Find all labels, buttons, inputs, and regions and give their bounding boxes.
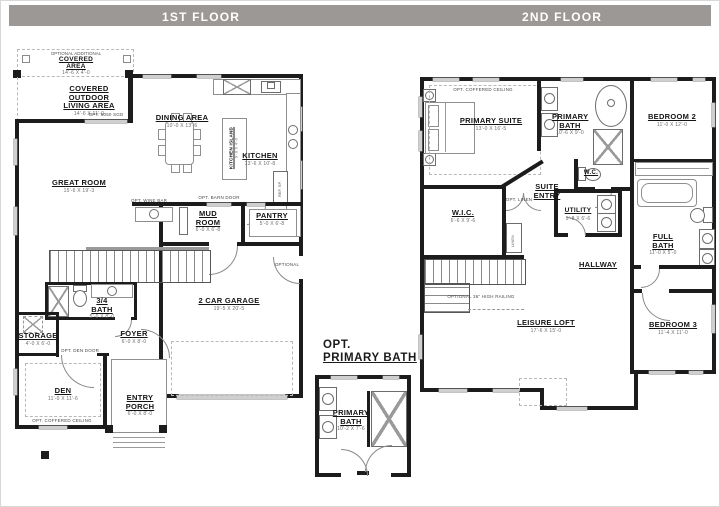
- wall: [237, 242, 245, 246]
- wall: [15, 312, 59, 315]
- floorplan-sheet: 1ST FLOOR 2ND FLOOR OPTIONAL ADDITIONAL …: [0, 0, 720, 507]
- primary-suite-label: PRIMARY SUITE 13'-0 X 16'-5: [460, 117, 522, 132]
- porch-step-line: [113, 447, 165, 448]
- window: [557, 407, 587, 410]
- wall: [315, 473, 341, 477]
- opt-bath-title-line2: PRIMARY BATH: [323, 352, 417, 365]
- window: [14, 207, 17, 235]
- optional-door-note: OPTIONAL: [275, 262, 299, 267]
- ref-space-label: REF. SP.: [277, 181, 282, 197]
- door-arc: [365, 445, 392, 472]
- mudroom-bench: [179, 207, 188, 235]
- bar-sink-icon: [149, 209, 159, 219]
- double-door-arc: [506, 193, 524, 211]
- pantry-label: PANTRY 5'-0 X 6'-8: [256, 212, 288, 227]
- window: [712, 305, 715, 333]
- wall: [407, 375, 411, 477]
- wall: [634, 370, 716, 374]
- wall: [15, 353, 57, 356]
- window: [143, 75, 171, 78]
- wall: [630, 77, 634, 163]
- sink-icon: [107, 286, 117, 296]
- window: [14, 139, 17, 165]
- wc-label: W.C.: [584, 169, 598, 178]
- dryer-drum-icon: [601, 217, 612, 228]
- porch-post: [105, 425, 113, 433]
- window: [651, 78, 677, 81]
- window: [383, 376, 399, 379]
- wall: [422, 185, 504, 189]
- dining-area-label: DINING AREA 10'-0 X 13'-6: [156, 114, 209, 129]
- wall: [630, 159, 634, 269]
- opt-primary-bath-title: OPT. PRIMARY BATH: [323, 339, 417, 365]
- wall: [618, 189, 622, 237]
- den-label: DEN 11'-0 X 11'-6: [48, 387, 78, 402]
- door-arc: [641, 269, 660, 288]
- wall: [241, 242, 303, 246]
- wall: [634, 374, 638, 410]
- window: [439, 389, 467, 392]
- full-bath-label: FULL BATH 11'-0 X 5'-0: [649, 233, 677, 256]
- wall: [585, 233, 622, 237]
- staircase: [49, 250, 211, 283]
- window: [473, 78, 499, 81]
- wall: [669, 289, 716, 293]
- car-parking-outline: [171, 341, 293, 396]
- wall: [554, 233, 568, 237]
- suite-ceiling-note: OPT. COFFERED CEILING: [453, 87, 512, 92]
- window: [433, 78, 459, 81]
- railing-note: OPTIONAL 36" HIGH RAILING: [447, 294, 514, 299]
- bedroom2-label: BEDROOM 2 11'-0 X 12'-0: [648, 113, 696, 128]
- opt-covered-area-label: OPTIONAL ADDITIONAL COVERED AREA 14'-6 X…: [50, 51, 102, 76]
- window: [39, 426, 67, 429]
- window: [649, 371, 675, 374]
- kitchen-label: KITCHEN 13'-6 X 10'-8: [242, 152, 277, 167]
- wall: [391, 473, 411, 477]
- storage-label: STORAGE 4'-0 X 6'-0: [18, 332, 57, 347]
- window: [689, 371, 703, 374]
- porch-post: [159, 425, 167, 433]
- porch-post: [22, 55, 30, 63]
- chair: [171, 164, 180, 173]
- island-label: KITCHEN ISLAND 9'-0 X 4'-0: [229, 120, 240, 176]
- sliding-glass-door: [85, 120, 127, 123]
- range-icon: [223, 79, 251, 95]
- window: [561, 78, 583, 81]
- door-arc: [209, 246, 238, 275]
- staircase: [424, 259, 526, 285]
- hallway-label: HALLWAY: [579, 261, 617, 270]
- opt-den-door-note: OPT. DEN DOOR: [61, 348, 99, 353]
- wall: [659, 265, 716, 269]
- tub-drain-icon: [607, 99, 615, 107]
- entry-porch-label: ENTRY PORCH 6'-0 X 8'-0: [122, 394, 158, 417]
- closet-rod-line: [637, 168, 709, 169]
- wall: [134, 282, 137, 320]
- utility-label: UTILITY 5'-8 X 6'-6: [565, 207, 592, 222]
- patio-edge-line: [17, 77, 19, 121]
- window: [197, 75, 221, 78]
- great-room-label: GREAT ROOM 15'-6 X 19'-3: [52, 179, 106, 194]
- primary-bath-label: PRIMARY BATH 10'-6 X 9'-0: [552, 113, 588, 136]
- wall: [103, 356, 107, 429]
- foyer-label: FOYER 6'-0 X 8'-0: [120, 330, 147, 345]
- window: [493, 389, 519, 392]
- wall: [630, 289, 634, 374]
- closet: [635, 162, 713, 176]
- floor2-title: 2ND FLOOR: [522, 10, 602, 24]
- toilet-icon: [73, 290, 87, 307]
- chair: [183, 164, 192, 173]
- window: [712, 103, 715, 127]
- opt-linen-note: OPT. LINEN: [506, 197, 533, 202]
- chair: [158, 129, 166, 140]
- wall: [241, 202, 245, 246]
- opt-sgd-note: OPT. 6050 SGD: [89, 112, 124, 117]
- prep-sink-icon: [288, 139, 298, 149]
- porch-post: [41, 451, 49, 459]
- window: [419, 97, 422, 117]
- wic-label: W.I.C. 6'-6 X 9'-6: [451, 209, 476, 224]
- garage-label: 2 CAR GARAGE 19'-5 X 20'-5: [198, 297, 259, 312]
- door-arc: [642, 293, 670, 321]
- sink-icon: [544, 93, 555, 104]
- shower-icon: [371, 391, 407, 447]
- wall: [159, 242, 209, 246]
- linen-label: LINEN: [510, 235, 515, 247]
- floor1-title: 1ST FLOOR: [162, 10, 240, 24]
- window: [331, 376, 357, 379]
- prep-sink-icon: [288, 125, 298, 135]
- window: [419, 131, 422, 151]
- window: [693, 78, 705, 81]
- railing-outline: [468, 309, 524, 311]
- porch-post: [123, 55, 131, 63]
- suite-entry-label: SUITE ENTRY: [532, 183, 562, 200]
- window: [14, 369, 17, 395]
- wall: [299, 279, 303, 398]
- opt-bath-title-line1: OPT.: [323, 339, 417, 352]
- chair: [193, 145, 201, 156]
- header-bar: [9, 5, 711, 26]
- door-arc: [341, 449, 368, 476]
- mud-room-label: MUD ROOM 6'-0 X 6'-8: [191, 210, 225, 233]
- bedroom3-label: BEDROOM 3 11'-4 X 11'-0: [649, 321, 697, 336]
- wall: [540, 406, 638, 410]
- wall: [299, 246, 303, 256]
- opt-wine-bar-note: OPT. WINE BAR: [131, 198, 167, 203]
- porch-step-line: [113, 437, 165, 438]
- barn-door-opening: [207, 203, 231, 206]
- wall: [554, 189, 622, 193]
- sink-icon: [702, 253, 713, 264]
- chair: [158, 145, 166, 156]
- porch-step-line: [113, 442, 165, 443]
- window: [419, 335, 422, 359]
- bathtub-inner: [641, 183, 693, 203]
- den-ceiling-note: OPT. COFFERED CEILING: [32, 418, 91, 423]
- toilet-icon: [690, 208, 705, 223]
- washer-drum-icon: [601, 199, 612, 210]
- faucet-icon: [267, 82, 275, 89]
- three-quarter-bath-label: 3/4 BATH 5'-0 X 8'-0: [87, 297, 117, 320]
- chair: [193, 129, 201, 140]
- sink-icon: [702, 233, 713, 244]
- sink-icon: [322, 393, 334, 405]
- opt-bath-room-label: PRIMARY BATH 10'-2 X 7'-6: [332, 409, 370, 432]
- leisure-loft-label: LEISURE LOFT 17'-6 X 15'-0: [517, 319, 575, 334]
- shower-icon: [593, 129, 623, 165]
- opt-barn-door-note: OPT. BARN DOOR: [198, 195, 239, 200]
- optional-area-outline: [519, 378, 567, 406]
